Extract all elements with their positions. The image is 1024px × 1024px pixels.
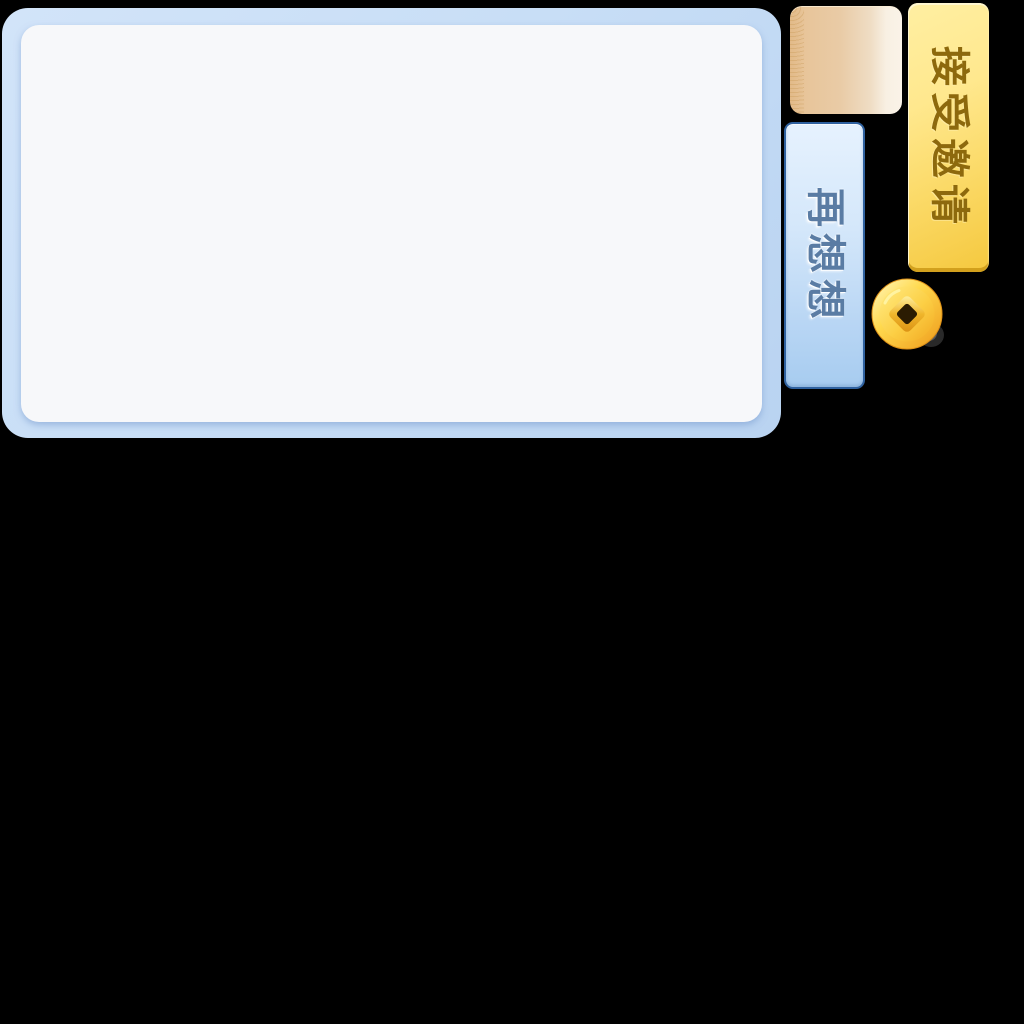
think-again-button[interactable]: 再想想 <box>784 122 865 389</box>
game-overlay: 接受邀请 再想想 <box>0 0 1024 1024</box>
dialog-panel <box>2 8 781 438</box>
dialog-panel-content <box>21 25 762 422</box>
gold-coin-icon <box>868 275 952 357</box>
think-again-label: 再想想 <box>805 187 845 325</box>
parchment-fragment <box>790 6 902 114</box>
accept-invite-label: 接受邀请 <box>929 46 969 230</box>
accept-invite-button[interactable]: 接受邀请 <box>908 3 989 272</box>
